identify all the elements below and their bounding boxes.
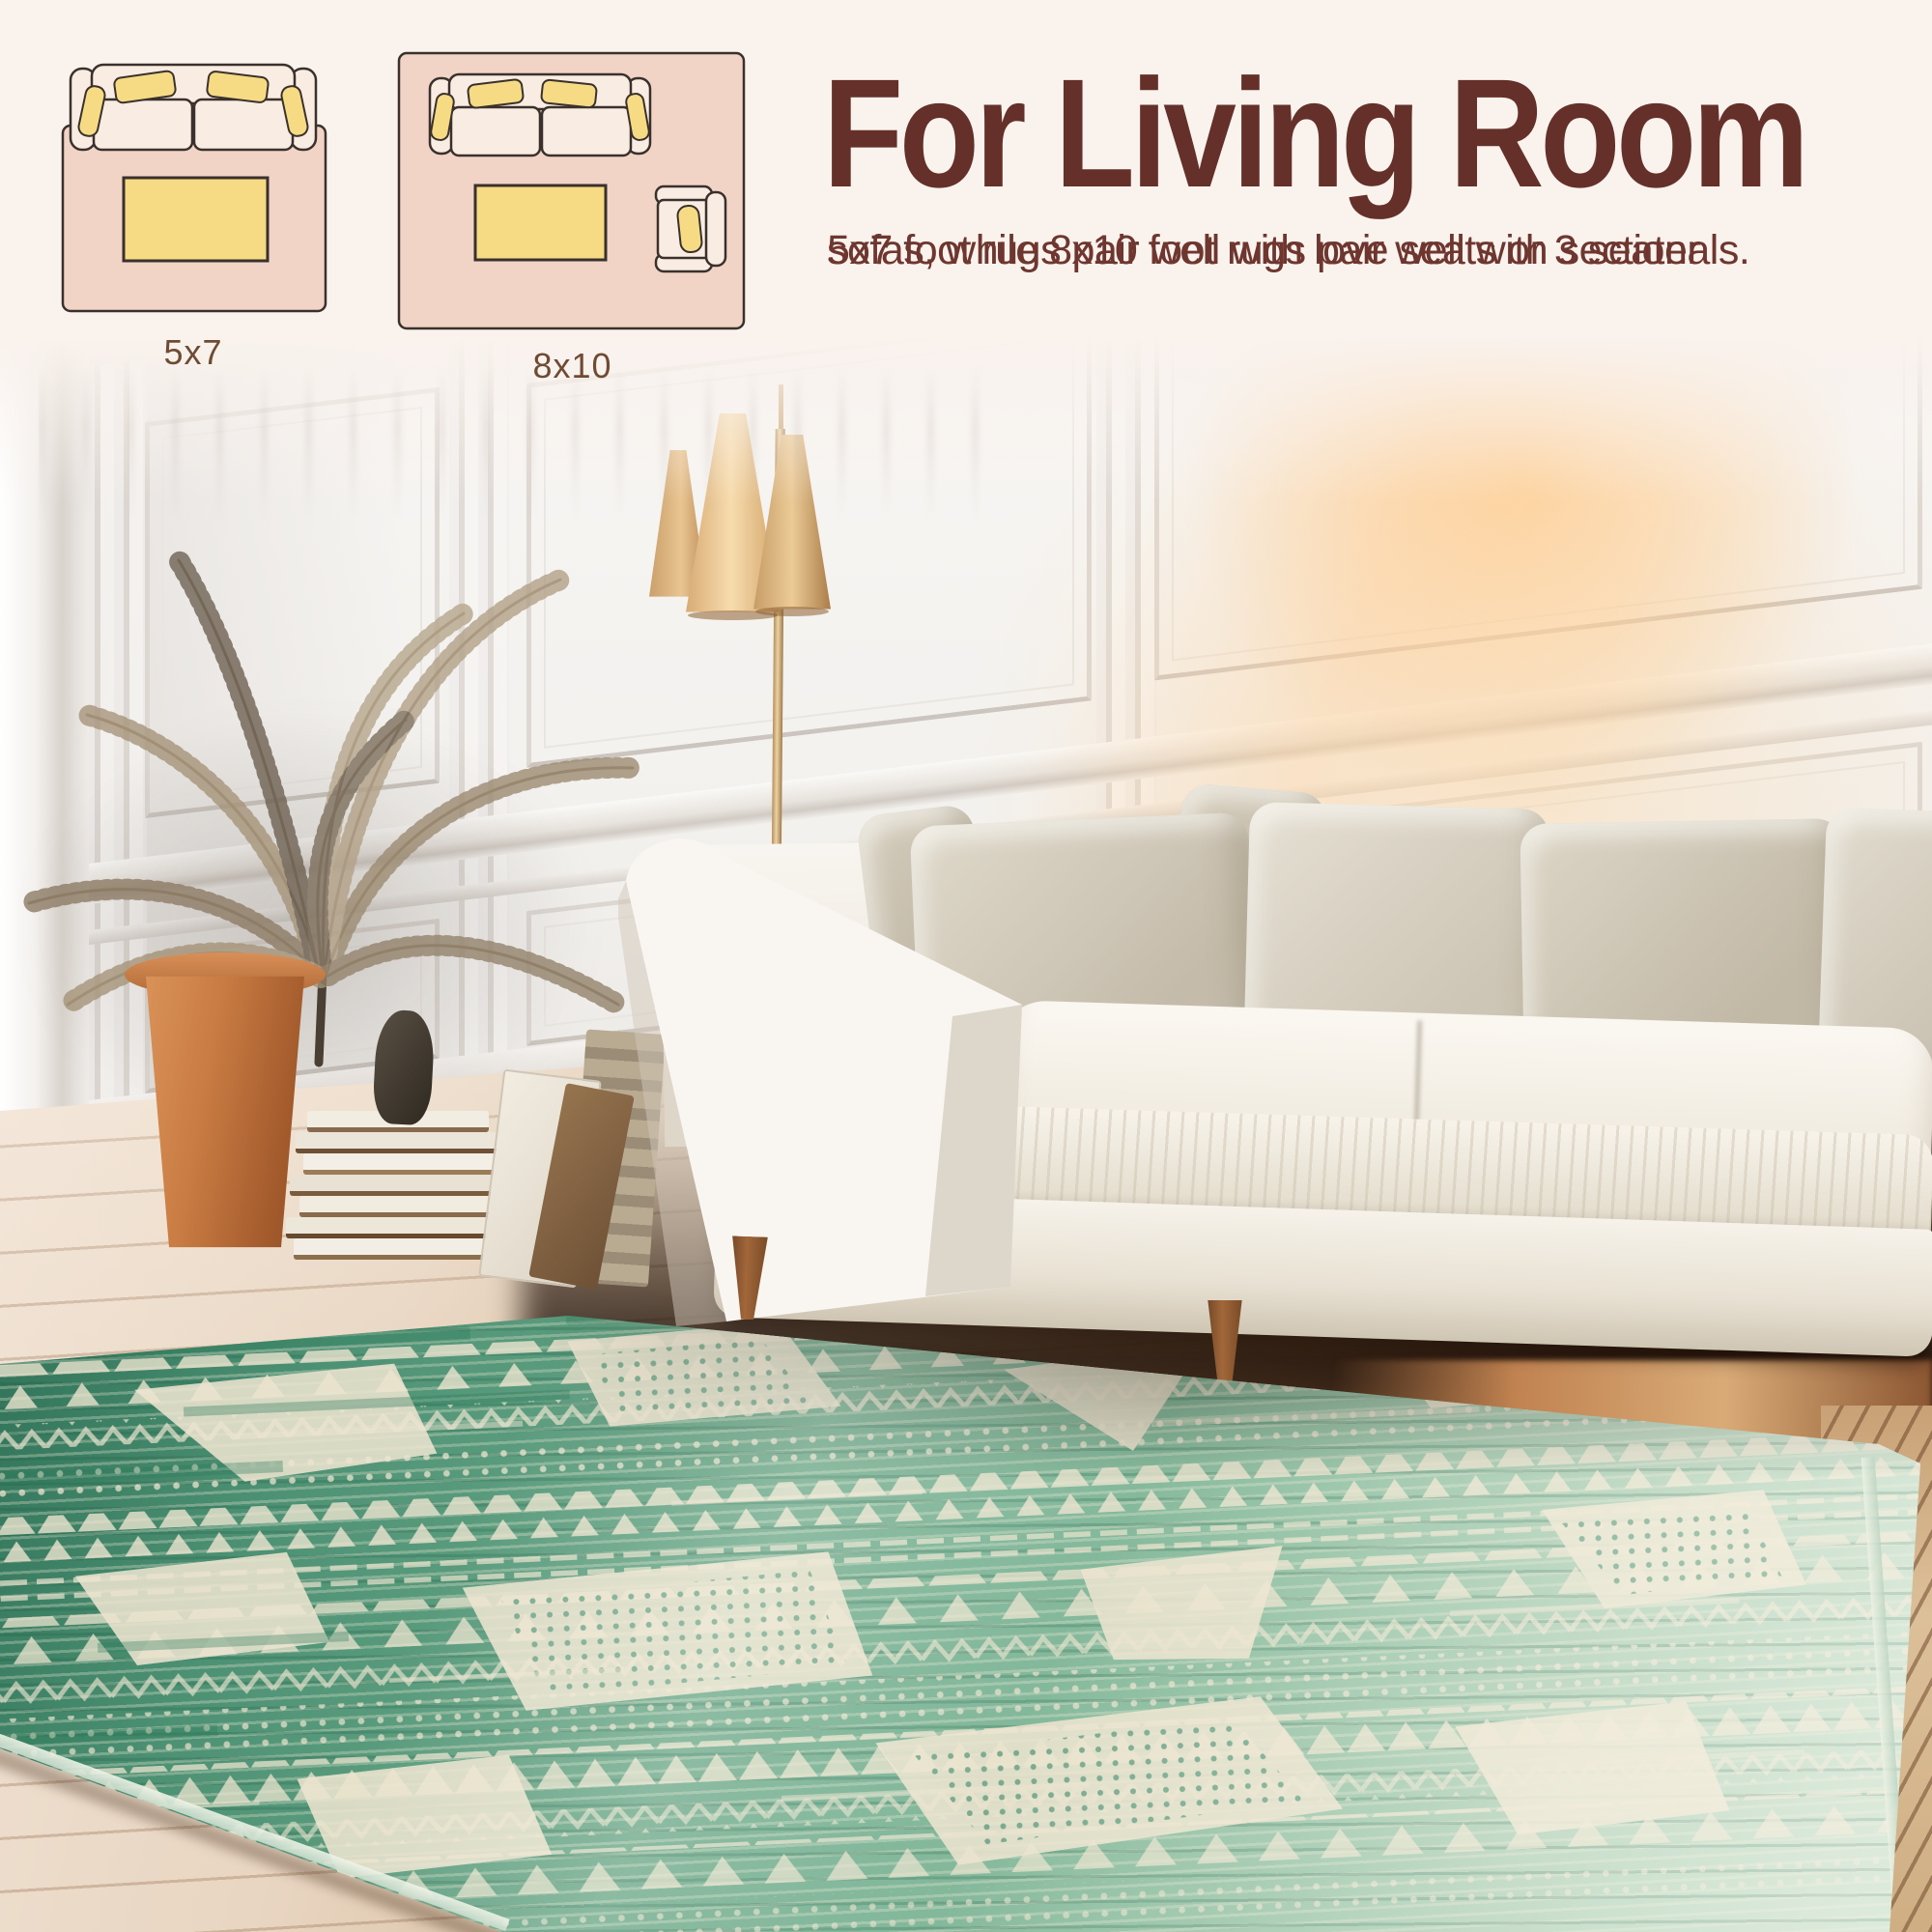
banner-body-line: sofas, while 8x10 foot rugs pair well wi…: [827, 223, 1749, 278]
photo-top-blur: [39, 367, 1005, 522]
rug-size-diagram-8x10: [396, 43, 749, 333]
diagram-label-5x7: 5x7: [53, 332, 333, 373]
diagram-loveseat: [71, 65, 316, 150]
diagram-coffee-table: [475, 185, 606, 260]
diagram-label-8x10: 8x10: [396, 346, 749, 386]
sofa-armrest: [618, 826, 1034, 1338]
diagram-armchair: [656, 186, 725, 271]
diagram-sofa: [430, 74, 650, 156]
diagram-coffee-table: [124, 178, 268, 261]
product-infographic: For Living Room 5x7 foot rugs pair well …: [0, 0, 1932, 1932]
rug-size-diagram-5x7: [53, 53, 333, 324]
banner-heading: For Living Room: [823, 56, 1932, 211]
